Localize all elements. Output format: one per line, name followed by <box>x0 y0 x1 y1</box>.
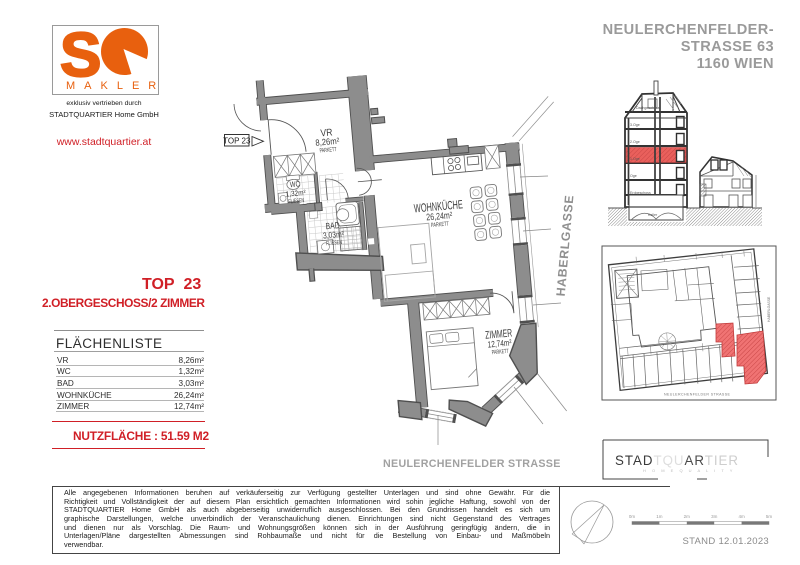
svg-text:TOP 23: TOP 23 <box>223 137 251 146</box>
svg-text:STADTQUARTIER: STADTQUARTIER <box>615 453 739 468</box>
svg-text:1.Oge: 1.Oge <box>630 157 640 161</box>
svg-text:0m: 0m <box>629 514 636 519</box>
svg-text:HABERLGASSE: HABERLGASSE <box>767 296 771 322</box>
svg-text:Oge: Oge <box>630 174 637 178</box>
svg-text:3,03m²: 3,03m² <box>323 229 345 241</box>
svg-text:12,74m²: 12,74m² <box>487 338 512 350</box>
svg-text:1,32m²: 1,32m² <box>285 188 306 199</box>
svg-text:3.Oge: 3.Oge <box>630 123 640 127</box>
svg-text:H O M E Q U A L I T Y: H O M E Q U A L I T Y <box>643 468 735 473</box>
svg-text:2.Oge: 2.Oge <box>630 140 640 144</box>
svg-text:FLIESEN: FLIESEN <box>326 240 342 247</box>
svg-text:NEULERCHENFELDER STRASSE: NEULERCHENFELDER STRASSE <box>664 393 731 397</box>
svg-text:4m: 4m <box>738 514 745 519</box>
svg-text:8,26m²: 8,26m² <box>315 136 340 148</box>
svg-text:5m: 5m <box>766 514 773 519</box>
svg-text:1m: 1m <box>656 514 663 519</box>
svg-text:Erdgeschoss: Erdgeschoss <box>630 191 651 195</box>
svg-text:2m: 2m <box>684 514 691 519</box>
svg-text:Keller: Keller <box>648 213 658 217</box>
svg-text:PARKETT: PARKETT <box>319 147 337 154</box>
svg-text:STAND 12.01.2023: STAND 12.01.2023 <box>683 536 769 547</box>
svg-text:PARKETT: PARKETT <box>431 221 450 229</box>
svg-text:3m: 3m <box>711 514 718 519</box>
svg-text:PARKETT: PARKETT <box>492 349 510 356</box>
